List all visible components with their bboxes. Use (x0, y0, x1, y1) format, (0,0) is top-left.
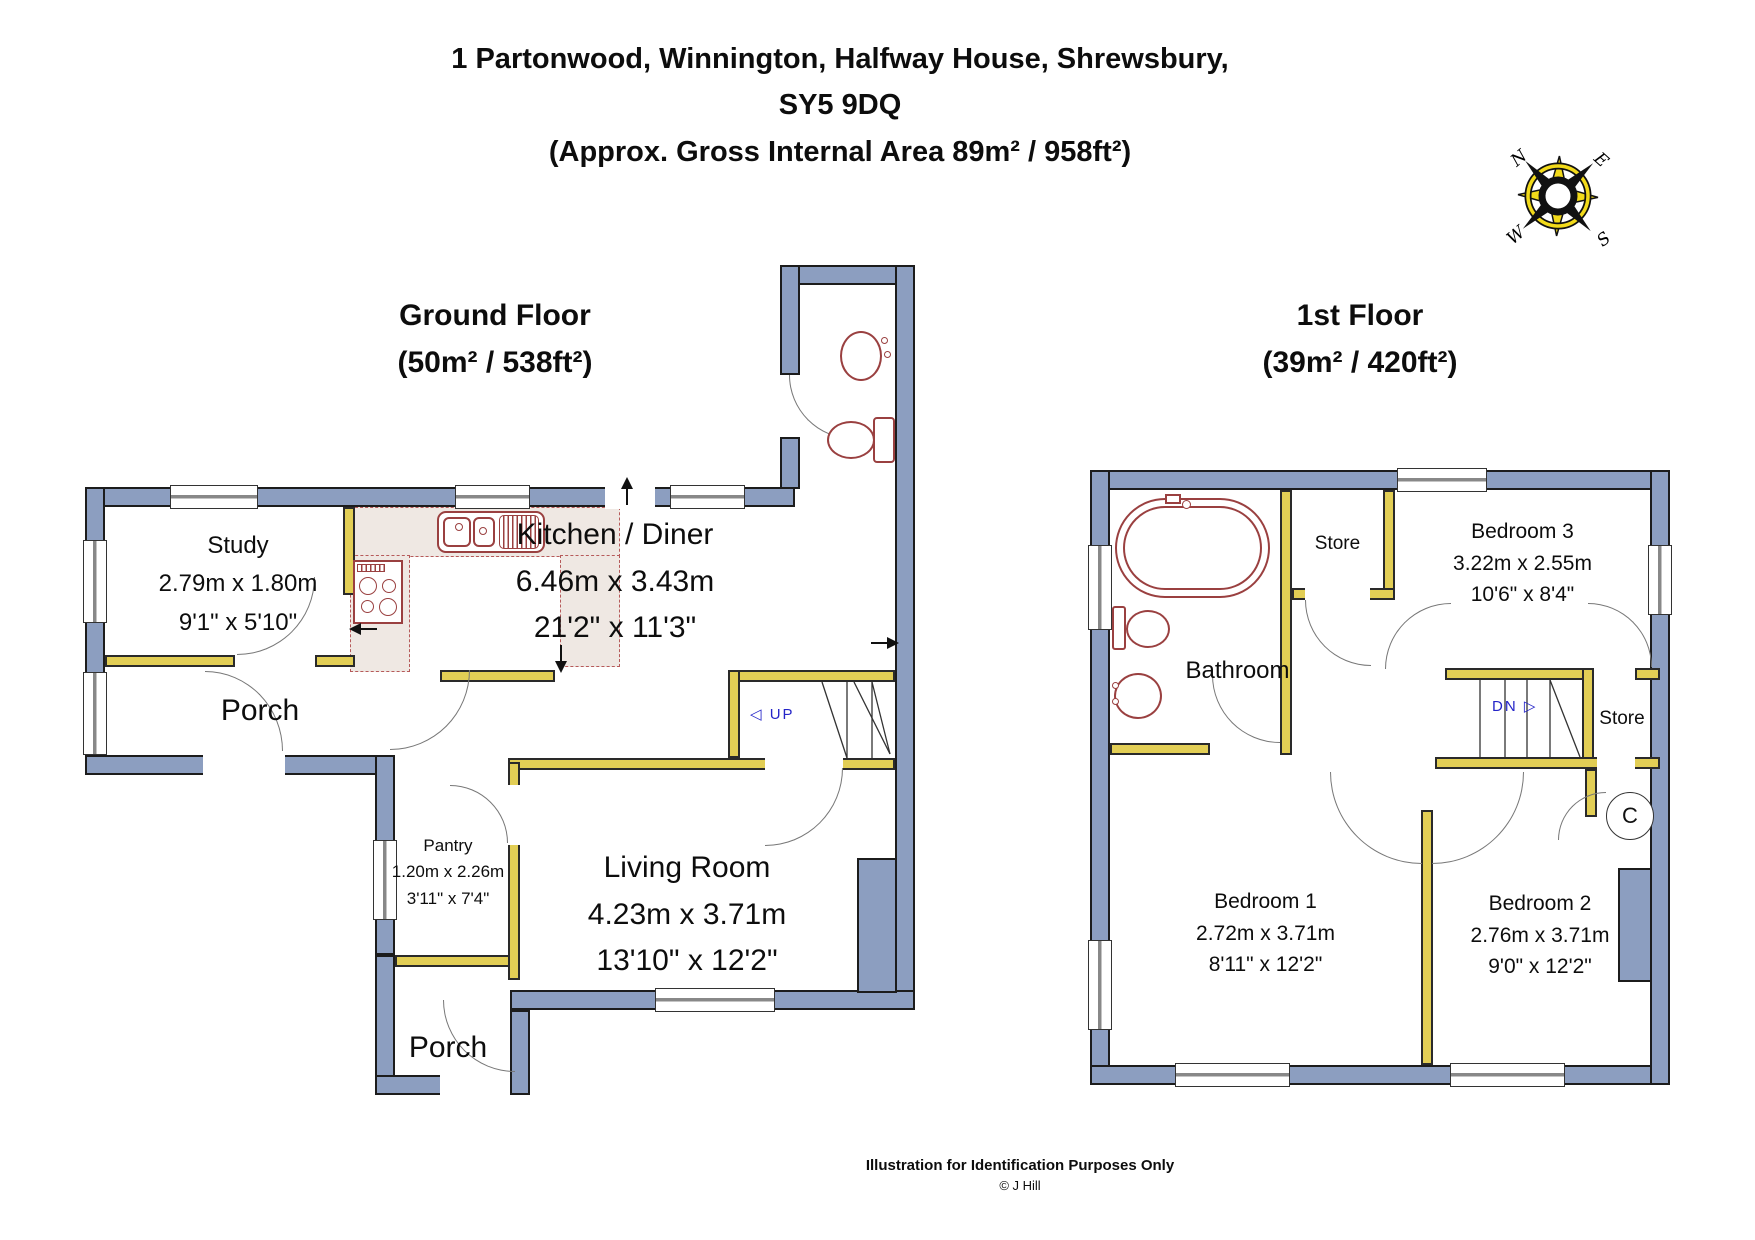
interior-wall (1280, 490, 1292, 755)
room-name: Bedroom 3 (1420, 516, 1625, 548)
interior-wall (395, 955, 510, 967)
door-opening (235, 653, 315, 669)
first-floor-title: 1st Floor (1145, 293, 1575, 340)
stairs-up-label: ◁ UP (750, 705, 795, 723)
compass-rose: N E W S (1498, 136, 1618, 256)
room-name: Bathroom (1150, 652, 1325, 690)
room-dim-metric: 2.79m x 1.80m (143, 565, 333, 603)
door-swing-arc (1432, 772, 1524, 864)
door-swing-arc (765, 768, 843, 846)
door-swing-arc (1330, 772, 1422, 864)
door-opening (440, 1073, 510, 1097)
room-name: Study (143, 527, 333, 565)
toilet-icon (827, 421, 875, 459)
door-swing-arc (390, 670, 470, 750)
stairs-up-text: UP (770, 706, 795, 723)
interior-wall (105, 655, 235, 667)
tap-icon (1112, 682, 1119, 689)
tap-icon (1165, 494, 1181, 504)
door-swing-arc (1385, 603, 1451, 669)
room-name: Bedroom 1 (1148, 886, 1383, 918)
title-line1: 1 Partonwood, Winnington, Halfway House,… (60, 36, 1620, 82)
door-swing-arc (1558, 792, 1606, 840)
room-label-living-room: Living Room 4.23m x 3.71m 13'10" x 12'2" (537, 845, 837, 985)
room-name: Pantry (387, 833, 509, 859)
hob-knobs-icon (357, 564, 385, 572)
tap-icon (884, 351, 891, 358)
burner-icon (361, 600, 374, 613)
room-name: Living Room (537, 845, 837, 892)
burner-icon (382, 579, 396, 593)
window (1175, 1063, 1290, 1087)
window (83, 672, 107, 755)
room-dim-imperial: 21'2" x 11'3" (465, 605, 765, 652)
exterior-wall (1090, 470, 1670, 490)
interior-wall (728, 670, 740, 758)
interior-wall (1445, 668, 1594, 680)
burner-icon (379, 598, 397, 616)
room-name: Kitchen / Diner (465, 512, 765, 559)
room-label-bedroom3: Bedroom 3 3.22m x 2.55m 10'6" x 8'4" (1420, 516, 1625, 611)
interior-wall (1110, 743, 1210, 755)
tap-icon (455, 523, 463, 531)
first-floor-area: (39m² / 420ft²) (1145, 340, 1575, 387)
window (1648, 545, 1672, 615)
exterior-wall (780, 265, 800, 375)
room-name: Porch (180, 688, 340, 735)
window (670, 485, 745, 509)
stairs-direction-icon: ◁ (750, 706, 764, 723)
window (1088, 940, 1112, 1030)
room-dim-imperial: 10'6" x 8'4" (1420, 579, 1625, 611)
chimney-breast (857, 858, 897, 993)
room-dim-metric: 3.22m x 2.55m (1420, 548, 1625, 580)
room-label-bedroom1: Bedroom 1 2.72m x 3.71m 8'11" x 12'2" (1148, 886, 1383, 981)
door-swing-arc (1588, 603, 1652, 667)
room-dim-metric: 4.23m x 3.71m (537, 892, 837, 939)
interior-wall (1635, 668, 1660, 680)
window (1088, 545, 1112, 630)
room-label-bathroom: Bathroom (1150, 652, 1325, 690)
room-label-store-right: Store (1593, 707, 1651, 732)
footer-copyright: © J Hill (770, 1176, 1270, 1196)
room-label-bedroom2: Bedroom 2 2.76m x 3.71m 9'0" x 12'2" (1440, 888, 1640, 983)
page-title: 1 Partonwood, Winnington, Halfway House,… (60, 36, 1620, 175)
footer-disclaimer: Illustration for Identification Purposes… (770, 1156, 1270, 1176)
window (655, 988, 775, 1012)
compass-label-e: E (1589, 148, 1613, 172)
title-line2: SY5 9DQ (60, 82, 1620, 128)
window (1397, 468, 1487, 492)
toilet-icon (1112, 606, 1126, 650)
entrance-arrow-icon (349, 621, 377, 637)
window (170, 485, 258, 509)
room-label-study: Study 2.79m x 1.80m 9'1" x 5'10" (143, 527, 333, 642)
room-label-kitchen-diner: Kitchen / Diner 6.46m x 3.43m 21'2" x 11… (465, 512, 765, 652)
room-label-store-top: Store (1290, 532, 1385, 557)
window (83, 540, 107, 623)
room-name: Store (1290, 532, 1385, 557)
room-label-pantry: Pantry 1.20m x 2.26m 3'11" x 7'4" (387, 833, 509, 912)
stairs-direction-icon: ▷ (1524, 698, 1538, 715)
room-label-porch-rear: Porch (373, 1025, 523, 1072)
entrance-arrow-icon (619, 477, 635, 505)
tap-icon (1112, 698, 1119, 705)
room-dim-imperial: 9'1" x 5'10" (143, 604, 333, 642)
stairs-down-label: DN ▷ (1492, 697, 1537, 715)
cupboard-circle: C (1606, 792, 1654, 840)
room-dim-imperial: 8'11" x 12'2" (1148, 949, 1383, 981)
door-opening (203, 753, 285, 777)
toilet-icon (873, 417, 895, 463)
tap-icon (1182, 500, 1191, 509)
entrance-arrow-icon (871, 635, 899, 651)
room-name: Bedroom 2 (1440, 888, 1640, 920)
room-dim-metric: 6.46m x 3.43m (465, 559, 765, 606)
first-floor-plan: C DN ▷ Bathroom Store Store Bedroom 3 3.… (1090, 470, 1670, 1095)
room-name: Store (1593, 707, 1651, 732)
footer: Illustration for Identification Purposes… (770, 1156, 1270, 1196)
cupboard-label: C (1622, 803, 1638, 829)
room-dim-metric: 2.76m x 3.71m (1440, 920, 1640, 952)
stairs-down-text: DN (1492, 698, 1518, 715)
first-floor-heading: 1st Floor (39m² / 420ft²) (1145, 293, 1575, 386)
interior-wall (315, 655, 355, 667)
burner-icon (359, 577, 377, 595)
room-dim-metric: 2.72m x 3.71m (1148, 918, 1383, 950)
room-dim-imperial: 13'10" x 12'2" (537, 938, 837, 985)
title-line3: (Approx. Gross Internal Area 89m² / 958f… (60, 129, 1620, 175)
staircase-down (1445, 680, 1582, 757)
toilet-icon (1126, 610, 1170, 648)
room-dim-imperial: 9'0" x 12'2" (1440, 951, 1640, 983)
window (1450, 1063, 1565, 1087)
window (455, 485, 530, 509)
room-dim-metric: 1.20m x 2.26m (387, 859, 509, 885)
exterior-wall (780, 437, 800, 489)
room-dim-imperial: 3'11" x 7'4" (387, 886, 509, 912)
basin-icon (840, 331, 882, 381)
bathtub-icon (1123, 506, 1262, 590)
door-opening (1597, 755, 1635, 771)
compass-label-n: N (1506, 145, 1532, 171)
tap-icon (881, 337, 888, 344)
ground-floor-plan: ◁ UP Study 2.79m x 1.80m 9'1" x 5'10" Ki… (85, 265, 915, 1105)
interior-wall (728, 670, 895, 682)
compass-label-s: S (1593, 228, 1614, 251)
room-name: Porch (373, 1025, 523, 1072)
room-label-porch-front: Porch (180, 688, 340, 735)
